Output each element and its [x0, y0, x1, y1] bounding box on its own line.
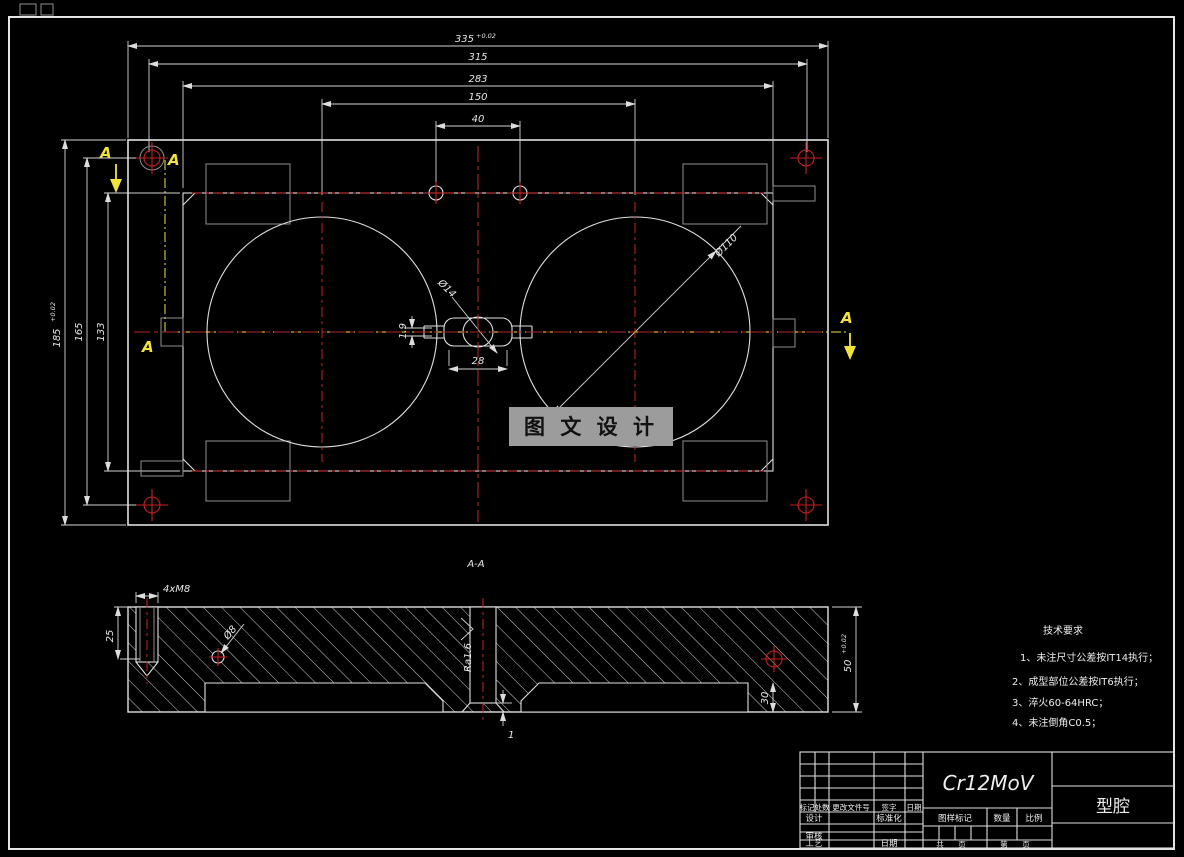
dim-335: 335	[455, 34, 474, 45]
dim-4xM8: 4xM8	[163, 584, 190, 595]
tech-line-4: 4、未注倒角C0.5；	[1012, 716, 1101, 729]
dim-1: 1	[508, 730, 514, 741]
part-name-label: 型腔	[1096, 797, 1130, 817]
tb-process: 工艺	[805, 839, 822, 849]
tb-date2: 日期	[880, 839, 897, 849]
tb-scale: 比例	[1025, 813, 1042, 824]
tech-title: 技术要求	[1043, 624, 1083, 637]
tb-drawing-mark: 图样标记	[938, 813, 973, 824]
roughness-value: Ra1.6	[463, 643, 474, 672]
tb-sign: 签字	[882, 802, 897, 812]
tb-page: 页	[958, 840, 966, 849]
tb-page2: 页	[1022, 840, 1030, 849]
section-letter-a1: A	[99, 144, 112, 162]
dim-30: 30	[760, 692, 771, 705]
tb-no: 第	[1000, 839, 1008, 849]
dim-1-9: 1.9	[398, 323, 409, 339]
left-cavity-pocket	[205, 683, 443, 712]
dim-165: 165	[74, 322, 85, 341]
tb-mark: 标记	[800, 802, 815, 812]
tb-standardize: 标准化	[876, 813, 902, 824]
dim-50-tol: +0.02	[840, 634, 848, 654]
section-letter-a2: A	[167, 151, 180, 169]
tech-line-1: 1、未注尺寸公差按IT14执行；	[1020, 651, 1158, 664]
section-letter-a4: A	[840, 309, 853, 327]
dim-150: 150	[468, 92, 487, 103]
tech-line-3: 3、淬火60-64HRC；	[1012, 696, 1108, 709]
dim-335-tol: +0.02	[476, 32, 496, 40]
tb-design: 设计	[805, 813, 823, 824]
tech-line-2: 2、成型部位公差按IT6执行；	[1012, 675, 1144, 688]
tb-count: 处数	[815, 802, 830, 812]
tb-date: 日期	[907, 803, 922, 812]
dim-25: 25	[105, 630, 116, 643]
dim-315: 315	[468, 52, 487, 63]
material-label: Cr12MoV	[943, 771, 1035, 795]
dim-185: 185	[52, 328, 63, 347]
dim-133: 133	[96, 322, 107, 341]
dim-185-tol: +0.02	[49, 302, 57, 322]
tb-total: 共	[936, 840, 944, 849]
right-cavity-pocket	[521, 683, 748, 712]
dim-50: 50	[843, 660, 854, 673]
watermark: 图 文 设 计	[509, 407, 673, 446]
cad-drawing-canvas: 335 +0.02 315 283 150 40 185 +0.02 165 1…	[0, 0, 1184, 857]
dim-283: 283	[468, 74, 487, 85]
section-letter-a3: A	[141, 338, 154, 356]
tb-change-doc: 更改文件号	[832, 802, 870, 812]
section-view-label: A-A	[466, 559, 484, 570]
tb-quantity: 数量	[993, 813, 1011, 824]
watermark-text: 图 文 设 计	[524, 415, 658, 439]
dim-40: 40	[472, 114, 485, 125]
